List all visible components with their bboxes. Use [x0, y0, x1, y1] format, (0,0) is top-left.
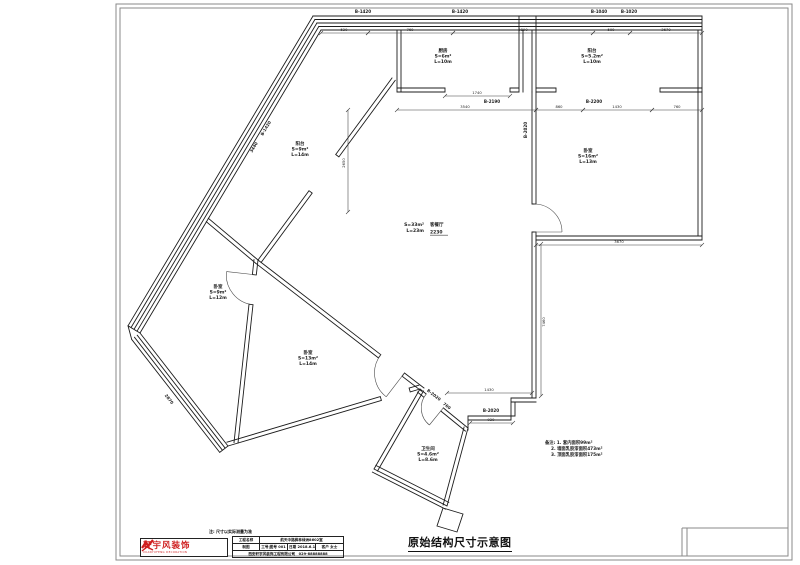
- room-label: 卫生间S=4.6m²L=8.6m: [417, 445, 439, 463]
- living-room-name: 客餐厅: [430, 221, 444, 228]
- right-exterior-wall: [698, 30, 702, 240]
- window-label: B-2020: [523, 122, 528, 138]
- window-label: B-2020: [426, 388, 442, 402]
- room-label: 卧室S=16m²L=13m: [578, 147, 598, 165]
- window-label: B-1420: [355, 9, 371, 14]
- room-label: 厨房S=6m²L=10m: [434, 47, 452, 65]
- window-label: B-1420: [452, 9, 468, 14]
- walls: [128, 16, 702, 532]
- balcony-bottom-wall: [536, 88, 702, 92]
- dimension-label: 1430: [612, 105, 622, 109]
- room-label: 卧室S=9m²L=12m: [209, 283, 227, 301]
- title-block-cell: 制图: [233, 544, 260, 551]
- dimension-label: 500: [607, 28, 615, 32]
- title-block-cell: 日期 2018.6.10: [288, 544, 316, 551]
- kitchen-walls: [397, 16, 536, 92]
- block-southeast-wall: [227, 385, 420, 446]
- door-arcs: [226, 204, 562, 425]
- strip-end-wall: [206, 218, 258, 263]
- balcony-strip-inner-wall: [258, 78, 395, 262]
- living-room-label: S=33m²L=23m: [404, 222, 424, 234]
- title-block-cell: 客户 女士: [316, 544, 344, 551]
- window-label: B-1040: [591, 9, 607, 14]
- window-label: B-1020: [621, 9, 637, 14]
- dimension-line: [346, 108, 350, 214]
- room-label: 阳台S=5.2m²L=10m: [581, 47, 603, 65]
- dimension-label: 860: [555, 105, 563, 109]
- corridor-step-walls: [468, 398, 536, 430]
- dimension-label: 3670: [661, 28, 671, 32]
- title-block-cell: 工号|图号 001: [260, 544, 288, 551]
- dimension-label: 2650: [342, 158, 346, 168]
- drawing-sheet: 5207602890500367017403540860143076036707…: [0, 0, 800, 565]
- window-label: 760: [442, 401, 452, 410]
- notes-block: 备注: 1. 套内面积99m²2. 墙面乳胶漆面积473m²3. 顶面乳胶漆面积…: [545, 439, 603, 458]
- dimension-label: 920: [487, 418, 495, 422]
- southwest-window-band: [128, 326, 228, 453]
- window-label: B-2190: [484, 99, 500, 104]
- dimension-label: 3540: [460, 105, 470, 109]
- title-block-table: 工程名称 航天中路枫林绿洲8602室 制图 工号|图号 001 日期 2018.…: [232, 536, 344, 558]
- dimension-label: 1430: [484, 388, 494, 392]
- title-block-company: 西安轩宇风装饰工程有限公司 029-88888888: [233, 551, 344, 558]
- title-block-row1-value: 航天中路枫林绿洲8602室: [260, 537, 344, 544]
- dimension-label: 2890: [518, 28, 528, 32]
- drawing-title: 原始结构尺寸示意图: [408, 534, 512, 552]
- dimension-label: 3670: [614, 240, 624, 244]
- bedroom-divider-wall: [234, 260, 258, 443]
- title-block-row1-label: 工程名称: [233, 537, 260, 544]
- window-label: 3440: [249, 141, 259, 153]
- logo-zigzag-icon: [141, 539, 154, 552]
- living-southwest-wall: [256, 260, 424, 391]
- floor-plan-svg: 5207602890500367017403540860143076036707…: [0, 0, 800, 565]
- middle-vertical-wall: [532, 92, 536, 398]
- top-window-band: [313, 16, 702, 30]
- living-room-elevation: 2230: [430, 230, 443, 236]
- diagonal-window-band: [128, 16, 321, 333]
- dimension-label: 760: [673, 105, 681, 109]
- window-label: B-2200: [586, 99, 602, 104]
- sheet-frame: [116, 4, 792, 560]
- dimension-label: 7460: [542, 317, 546, 327]
- room-label: 卧室S=13m²L=14m: [298, 349, 318, 367]
- dimension-label: 520: [340, 28, 348, 32]
- company-logo: 轩宇风装饰 XUANYUFENG DECORATION: [140, 538, 228, 557]
- measurement-note: 注: 尺寸以实际测量为准: [209, 529, 252, 535]
- window-label: 2870: [164, 393, 175, 405]
- room-label: 阳台S=9m²L=14m: [291, 140, 309, 158]
- window-label: B-2020: [483, 408, 499, 413]
- dimension-label: 760: [406, 28, 414, 32]
- dimension-label: 1740: [472, 91, 482, 95]
